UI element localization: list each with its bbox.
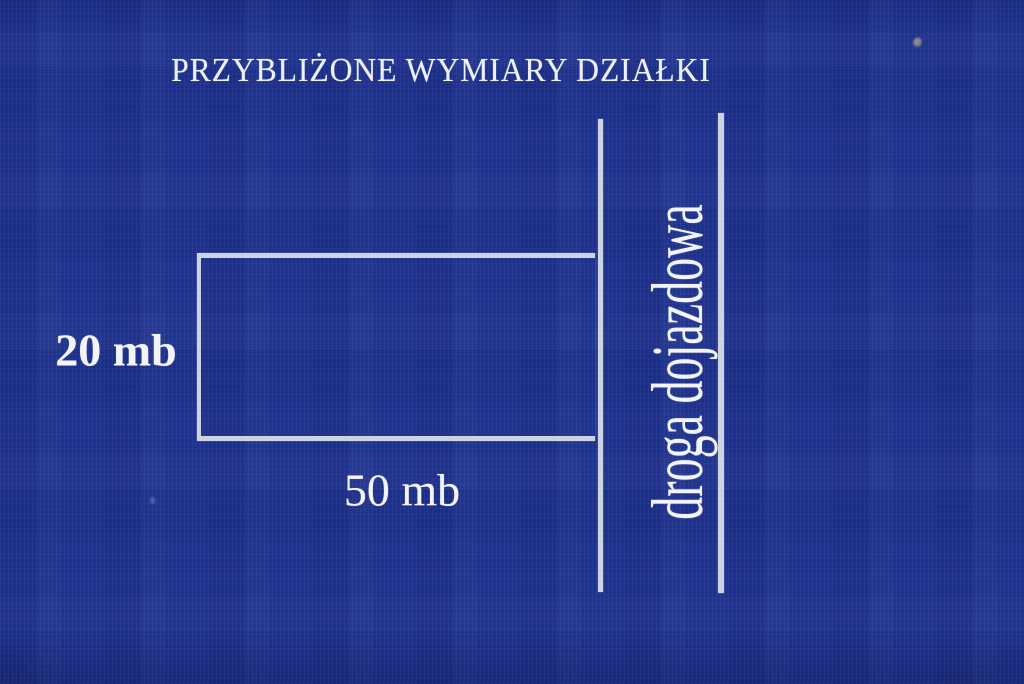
- road-line-left: [598, 119, 603, 592]
- plot-rectangle: [197, 253, 595, 441]
- road-label: droga dojazdowa: [641, 204, 715, 520]
- diagram-canvas: PRZYBLIŻONE WYMIARY DZIAŁKI 20 mb 50 mb …: [0, 0, 1024, 684]
- diagram-title: PRZYBLIŻONE WYMIARY DZIAŁKI: [171, 52, 711, 90]
- plot-width-label: 50 mb: [344, 464, 460, 517]
- road-line-right: [718, 113, 724, 593]
- plot-height-label: 20 mb: [55, 324, 176, 377]
- faint-speck-mark: [150, 497, 155, 504]
- paper-speck-mark: [913, 37, 922, 49]
